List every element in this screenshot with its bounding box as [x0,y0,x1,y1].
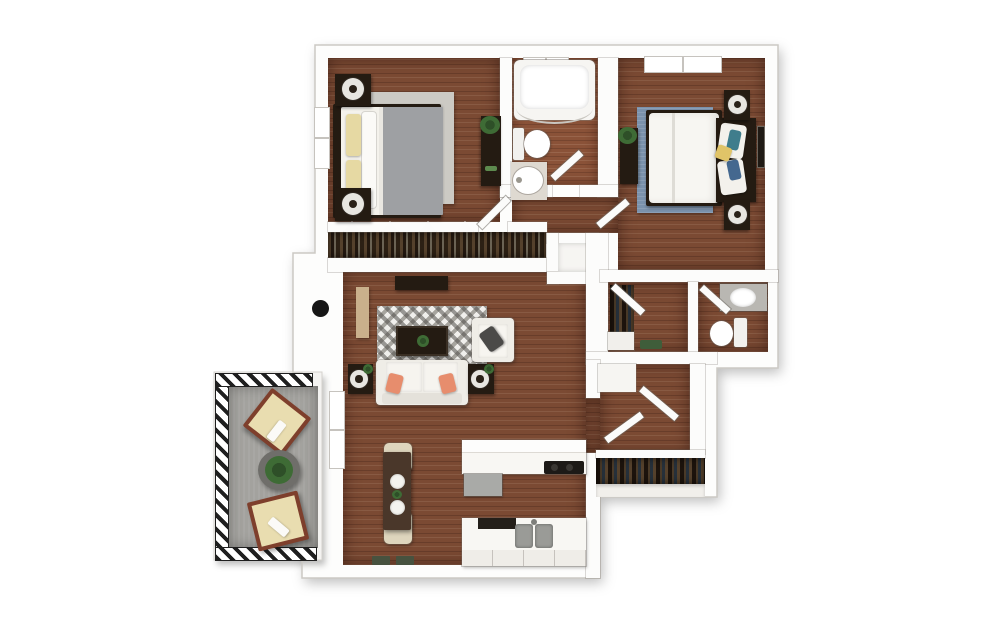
dishwasher [464,474,502,496]
end-table-plant [484,364,494,374]
wall-closet-bath2-divider [688,282,698,352]
wall-hallcloset-top [596,450,705,458]
breakfast-bar-lip [462,440,586,453]
table-centerpiece [392,490,402,499]
cooktop [544,461,584,474]
wall-bath1-bottom-right [580,185,618,197]
wall-closet1-top-right [508,222,547,232]
wall-hall-right [690,364,705,454]
hall-closet-interior [596,458,705,484]
wall-bed2-bottom [600,270,778,282]
potted-plant [618,127,637,144]
cooktop-burner [551,464,558,471]
sofa-back [382,393,462,404]
cooktop-burner [566,464,573,471]
place-setting [390,474,405,489]
dresser-decor [485,166,497,171]
sink-basin [515,524,533,548]
bed-2-fold [672,113,675,203]
tv-console [395,276,448,290]
sink-basin [535,524,553,548]
wall-living-closetblock [586,233,608,364]
tall-cabinet [356,287,369,338]
balcony-slider-door [330,392,344,468]
table-lamp [342,193,364,215]
wall-bath1-bed2 [598,58,618,197]
floor-vent [372,556,390,565]
place-setting [390,500,405,515]
balcony-plant [265,456,293,484]
balcony-rail-left [216,374,228,560]
hall-entrance-floor [586,398,600,453]
closet-1-interior [328,232,546,258]
table-lamp [728,95,747,114]
end-table-plant [363,364,373,374]
shower-curtain-rod [516,92,593,124]
bed-1-pillow-yellow [346,114,361,156]
sink-faucet [516,177,522,183]
potted-plant [480,116,500,134]
wall-art [757,126,765,168]
bedroom-1-window [315,108,329,168]
counter-dark-section [478,518,516,529]
closet-shelf [608,332,634,350]
bed-1-comforter [379,107,443,215]
coffee-table-plant [417,335,429,347]
floor-vent [396,556,414,565]
sink-faucet [531,519,537,525]
toilet-bowl [524,130,550,158]
wall-closet1-bottom [328,258,558,272]
floor-plan [0,0,998,626]
front-door-knob [312,300,329,317]
balcony-rail-bottom [216,548,316,560]
storage-bins [640,340,662,349]
hall-niche [598,364,636,392]
wall-closetblock-bottom [586,352,717,364]
bath-2-sink [730,288,756,307]
bedroom-2-window [645,57,721,72]
toilet-tank [734,318,747,347]
balcony-rail-top [216,374,312,386]
toilet-bowl [710,321,733,346]
hall-closet-shelf [596,484,705,497]
toilet-tank [513,128,524,160]
table-lamp [728,205,747,224]
table-lamp [342,78,364,100]
bed-2-mattress [649,113,719,203]
cabinet-fronts [462,550,586,566]
